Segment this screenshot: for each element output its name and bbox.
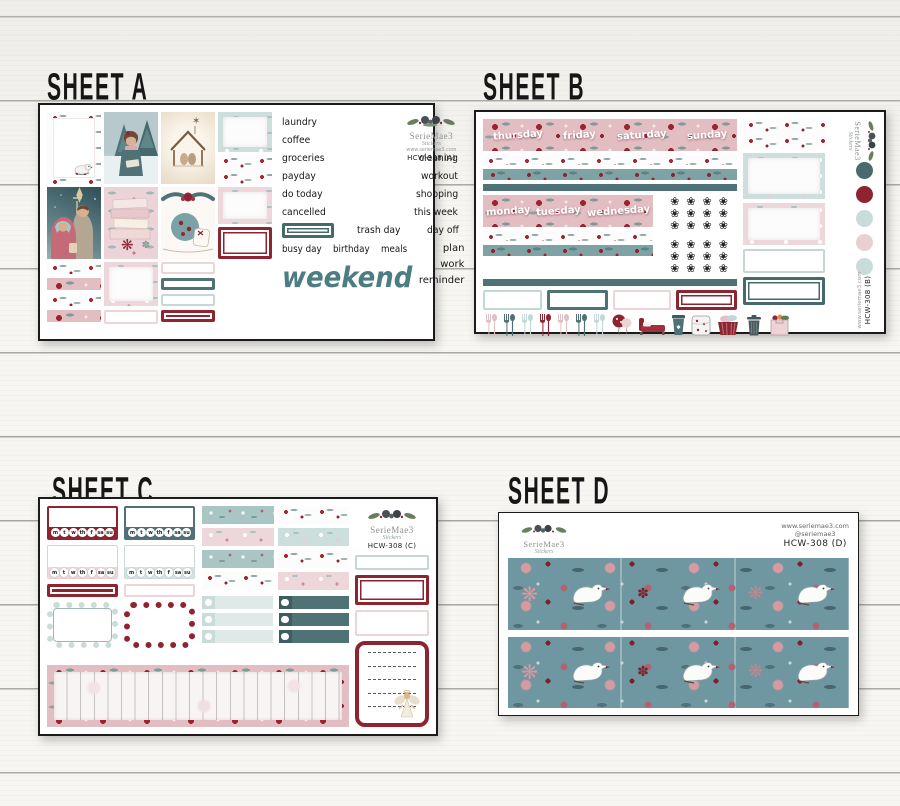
blue-floral-box-blank	[748, 158, 820, 194]
day-letter: w	[69, 528, 78, 537]
day-letter: m	[127, 568, 136, 577]
word-row: cancelled this week	[282, 203, 464, 221]
washi-strip	[483, 231, 653, 241]
flower-icon: ✽	[637, 587, 649, 601]
sheet-d-meta: www.seriemae3.com @seriemae3 HCW-308 (D)	[781, 520, 849, 549]
utensils-icon-light-blue	[521, 314, 534, 336]
grocery-bag-icon	[768, 313, 791, 336]
pattern-sticker	[278, 572, 350, 590]
scallop-box-red	[124, 602, 195, 648]
word-label: cleaning	[419, 153, 458, 164]
pattern-sticker	[202, 506, 274, 524]
pink-label-sticker	[124, 584, 195, 597]
half-box-column	[218, 112, 272, 184]
day-letter: f	[87, 528, 96, 537]
brand-logo-block: SerieMae3 Stickers	[847, 104, 881, 178]
word-row: laundry	[282, 113, 355, 131]
day-label: friday	[563, 128, 597, 141]
checklist-strip-teal	[279, 630, 350, 643]
pink-label-sticker	[355, 610, 429, 636]
brand-tagline: Stickers	[508, 549, 580, 555]
washi-column: thursday friday saturday sunday monday	[483, 119, 737, 310]
day-letter: su	[183, 568, 192, 577]
day-letter: sa	[96, 528, 105, 537]
dove-washi-strip: ❋ ✽ ❋	[508, 637, 849, 709]
sticker-sheet-b: thursday friday saturday sunday monday	[474, 110, 886, 334]
day-label: monday	[486, 204, 531, 218]
label-sticker-row	[483, 290, 737, 310]
day-letter: m	[51, 528, 60, 537]
blue-floral-box-blank	[223, 117, 267, 147]
star-icon: ✶	[192, 117, 200, 127]
checkbox-circle	[281, 599, 289, 607]
day-letter: sa	[97, 568, 106, 577]
dashed-line	[368, 666, 416, 667]
date-box-blank	[126, 508, 193, 527]
solid-teal-strip	[483, 184, 737, 191]
flower-checkbox-icon: ❀	[686, 220, 695, 232]
checkbox-circle	[281, 616, 289, 624]
pink-floral-box	[743, 203, 825, 245]
week-letter-strip: mtwthfsasu	[125, 567, 194, 578]
brand-tagline: Stickers	[398, 141, 464, 147]
utensils-icon-red	[539, 314, 552, 336]
pink-floral-box	[218, 187, 272, 224]
wreath-icon	[405, 114, 457, 127]
word-label: busy day	[282, 244, 322, 255]
sheet-a-content: ✶	[40, 105, 433, 339]
flower-checkbox-icon: ❀	[686, 263, 695, 275]
poinsettia-icon: ❋	[748, 663, 763, 681]
pink-floral-box-blank	[223, 192, 267, 219]
washi-strip	[483, 169, 737, 180]
day-letter: su	[106, 568, 115, 577]
wreath-icon	[520, 523, 568, 535]
day-letter: w	[146, 528, 155, 537]
checklist-grid	[202, 596, 349, 643]
laundry-basket-icon	[716, 313, 740, 336]
day-letter: m	[128, 528, 137, 537]
empty-cell	[218, 262, 272, 328]
right-box-column	[743, 119, 825, 310]
day-letter: th	[155, 528, 164, 537]
word-label: laundry	[282, 117, 317, 128]
teal-label-sticker	[161, 278, 215, 290]
date-box-blue: mtwthfsasu	[124, 545, 195, 579]
brand-handle: @seriemae3	[781, 530, 849, 538]
flower-checkbox-icon: ❀	[670, 263, 679, 275]
brand-tagline: Stickers	[355, 535, 429, 541]
date-box-column: mtwthfsasu mtwthfsasu	[47, 506, 195, 660]
word-label: birthday	[333, 244, 370, 255]
washi-strip	[483, 245, 653, 256]
brand-website: www.seriemae3.com	[857, 257, 863, 343]
pattern-sticker-grid	[202, 506, 349, 590]
brand-logo-block: SerieMae3 Stickers	[508, 520, 580, 555]
week-letter-strip: mtwthfsasu	[126, 527, 193, 538]
dove-icon	[675, 579, 721, 609]
day-letter: m	[50, 568, 59, 577]
label-row	[47, 584, 195, 597]
pattern-sticker	[202, 572, 274, 590]
day-letter: f	[165, 568, 174, 577]
red-label-sticker	[676, 290, 737, 310]
pink-floral-box-blank	[748, 208, 820, 240]
blue-label-sticker	[355, 555, 429, 570]
day-label: tuesday	[536, 204, 581, 218]
week-letter-strip: mtwthfsasu	[48, 567, 117, 578]
brand-name: SerieMae3	[853, 104, 862, 178]
angel-icon	[394, 687, 420, 719]
word-row: coffee	[282, 131, 355, 149]
day-letter: t	[137, 528, 146, 537]
washi-strip-stack	[47, 262, 101, 328]
flower-checkbox-icon: ❀	[670, 220, 679, 232]
checkbox-square	[202, 613, 215, 626]
word-row: payday workout	[282, 167, 464, 185]
pattern-column	[202, 506, 349, 660]
sheet-c-left: mtwthfsasu mtwthfsasu	[47, 506, 349, 727]
checklist-strip-blue	[202, 613, 273, 626]
flower-checkbox-icon: ❀	[719, 220, 728, 232]
word-label: work	[440, 259, 464, 270]
date-box-row: mtwthfsasu mtwthfsasu	[47, 545, 195, 579]
word-label: meals	[381, 244, 407, 255]
day-letter: th	[155, 568, 164, 577]
swatch-dark-red	[856, 186, 873, 203]
dove-icon	[565, 579, 611, 609]
swatch-blush-pink	[856, 234, 873, 251]
washi-strip	[47, 278, 101, 290]
tracker-columns	[54, 672, 342, 720]
day-label: thursday	[493, 128, 544, 142]
checkbox-square	[279, 596, 292, 609]
date-box-teal: mtwthfsasu	[124, 506, 195, 540]
flower-checkbox-icon: ❀	[703, 263, 712, 275]
swatch-light-blue	[856, 210, 873, 227]
pink-label-sticker	[613, 290, 672, 310]
day-letter: su	[182, 528, 191, 537]
pattern-sticker	[278, 550, 350, 568]
brand-website: www.seriemae3.com	[781, 522, 849, 530]
pink-label-sticker	[104, 310, 158, 324]
sheet-b-side-rail: SerieMae3 Stickers www.seriemae3.com HCW…	[851, 119, 877, 325]
word-label-panel: SerieMae3 Stickers www.seriemae3.com HCW…	[282, 112, 464, 332]
day-letter: t	[137, 568, 146, 577]
day-letter: w	[146, 568, 155, 577]
stable-art	[161, 112, 215, 184]
blue-label-sticker	[483, 290, 542, 310]
day-letter: t	[60, 528, 69, 537]
book-stack-sticker: ❋ ✽	[104, 187, 158, 259]
teal-label-sticker	[743, 277, 825, 305]
sticker-sheet-a: ✶	[38, 103, 435, 341]
dove-icon	[790, 579, 836, 609]
word-label: do today	[282, 189, 323, 200]
checkbox-circle	[205, 616, 213, 624]
date-box-row: mtwthfsasu mtwthfsasu	[47, 506, 195, 540]
poinsettia-icon: ❋	[521, 584, 538, 604]
sheet-d-title: SHEET D	[508, 470, 610, 513]
poinsettia-icon: ❋	[121, 238, 134, 253]
day-letter: su	[105, 528, 114, 537]
word-bottom-right: plan work reminder	[412, 240, 464, 332]
teal-label-sticker	[547, 290, 608, 310]
utensils-icon-teal	[575, 314, 588, 336]
washi-column-narrow: monday tuesday wednesday	[483, 195, 653, 275]
blue-label-sticker	[743, 249, 825, 273]
word-row: trash day day off	[282, 221, 464, 239]
pink-label-sticker	[161, 262, 215, 274]
flower-checkbox-grid: ❀❀❀❀ ❀❀❀❀ ❀❀❀❀	[670, 196, 728, 232]
rail-logo: SerieMae3 Stickers	[827, 120, 900, 162]
checkbox-circle	[281, 633, 289, 641]
brand-name: SerieMae3	[355, 525, 429, 535]
rail-code-text: www.seriemae3.com HCW-308 (B)	[856, 257, 872, 343]
day-label: wednesday	[587, 203, 651, 218]
washi-strip	[47, 262, 101, 274]
word-bottom-block: busy day birthday meals weekend plan wor…	[282, 240, 464, 332]
date-box-pink: mtwthfsasu	[47, 545, 118, 579]
dove-icon	[675, 657, 721, 687]
day-washi-strip: monday tuesday wednesday	[483, 195, 653, 227]
blue-floral-box	[743, 153, 825, 199]
day-label: sunday	[686, 128, 727, 142]
brand-name: SerieMae3	[398, 131, 464, 141]
sheet-b-content: thursday friday saturday sunday monday	[476, 112, 884, 332]
day-letter: sa	[173, 528, 182, 537]
bird-icon	[73, 162, 93, 175]
quarter-label-stack	[161, 262, 215, 328]
sheet-d-content: SerieMae3 Stickers www.seriemae3.com @se…	[499, 513, 858, 715]
utensils-icon-teal	[503, 314, 516, 336]
bird-frame-sticker	[47, 112, 101, 184]
coffee-cup-icon	[671, 314, 686, 336]
teal-label-sticker	[282, 223, 334, 238]
dashed-line	[368, 652, 416, 653]
blue-floral-box	[218, 112, 272, 152]
half-box-column-2	[218, 187, 272, 259]
wreath-icon	[366, 508, 418, 521]
checklist-strip-teal	[279, 596, 350, 609]
day-letter: t	[60, 568, 69, 577]
floral-box-stack	[104, 262, 158, 328]
pink-floral-frame-blank	[109, 267, 153, 301]
day-letter: th	[78, 528, 87, 537]
sheet-c-code: HCW-308 (C)	[355, 542, 429, 550]
checklist-strip-blue	[202, 596, 273, 609]
pattern-sticker	[278, 528, 350, 546]
word-row: busy day birthday meals	[282, 240, 412, 258]
balloon-icon	[611, 313, 633, 336]
day-letter: f	[88, 568, 97, 577]
word-bottom-left: busy day birthday meals weekend	[282, 240, 412, 332]
date-box-blank	[48, 546, 117, 567]
flower-checkbox-icon: ❀	[719, 263, 728, 275]
word-label: payday	[282, 171, 316, 182]
dove-icon	[790, 657, 836, 687]
tracker-washi-strip	[47, 665, 349, 727]
word-label: reminder	[419, 275, 465, 286]
day-label: saturday	[616, 128, 666, 142]
sheet-b-top: thursday friday saturday sunday monday	[483, 119, 846, 310]
poinsettia-icon: ❋	[521, 662, 538, 682]
poinsettia-icon: ❋	[748, 585, 763, 603]
checkbox-square	[279, 613, 292, 626]
pink-floral-frame-box	[104, 262, 158, 306]
date-box-red: mtwthfsasu	[47, 506, 118, 540]
red-label-sticker	[218, 227, 272, 260]
sparkle-leaf-icon: ✽	[142, 241, 150, 251]
holy-family-art	[47, 187, 101, 259]
word-label: groceries	[282, 153, 325, 164]
scallop-row	[47, 602, 195, 648]
brand-logo-block: SerieMae3 Stickers HCW-308 (C)	[355, 506, 429, 550]
sheet-b-title: SHEET B	[483, 66, 585, 109]
checklist-strip-teal	[279, 613, 350, 626]
icon-sticker-row	[483, 310, 846, 336]
gift-art	[161, 187, 215, 259]
word-label: workout	[421, 171, 458, 182]
word-label: this week	[414, 207, 458, 218]
flower-checkbox-icon: ❀	[703, 220, 712, 232]
mid-row: monday tuesday wednesday ❀❀❀❀	[483, 195, 737, 275]
rail-code: www.seriemae3.com HCW-308 (B)	[821, 275, 900, 324]
date-box-blank	[49, 508, 116, 527]
red-label-sticker	[355, 575, 429, 605]
flower-icon: ✽	[637, 665, 649, 679]
blanket-icon	[691, 315, 711, 336]
checkbox-square	[202, 596, 215, 609]
washi-strip	[47, 294, 101, 306]
trash-can-icon	[745, 314, 763, 336]
angel-note-box	[355, 641, 429, 727]
utensils-icon-pink	[485, 314, 498, 336]
checkbox-circle	[205, 599, 213, 607]
day-washi-strip: thursday friday saturday sunday	[483, 119, 737, 151]
week-letter-strip: mtwthfsasu	[49, 527, 116, 538]
sheet-c-content: mtwthfsasu mtwthfsasu	[40, 499, 436, 734]
sheet-d-code: HCW-308 (D)	[781, 539, 849, 549]
pattern-sticker	[202, 550, 274, 568]
word-label: cancelled	[282, 207, 326, 218]
word-label: shopping	[416, 189, 458, 200]
checklist-strip-blue	[202, 630, 273, 643]
washi-strip	[47, 310, 101, 322]
dashed-line	[368, 679, 416, 680]
sheet-d-header: SerieMae3 Stickers www.seriemae3.com @se…	[508, 520, 849, 558]
sheet-c-right: SerieMae3 Stickers HCW-308 (C)	[355, 506, 429, 727]
wreath-icon	[866, 119, 877, 163]
word-label: coffee	[282, 135, 310, 146]
winter-girl-sticker	[104, 112, 158, 184]
checkbox-circle	[205, 633, 213, 641]
white-floral-box	[743, 119, 825, 149]
word-row: groceries cleaning	[282, 149, 464, 167]
nativity-stable-sticker: ✶	[161, 112, 215, 184]
day-letter: w	[69, 568, 78, 577]
date-box-blank	[125, 546, 194, 567]
word-label: trash day	[357, 225, 400, 236]
utensils-icon-pink	[557, 314, 570, 336]
checkbox-square	[279, 630, 292, 643]
scallop-box-blue	[47, 602, 118, 648]
pattern-sticker	[202, 528, 274, 546]
sheet-b-main-area: thursday friday saturday sunday monday	[483, 119, 846, 325]
utensils-icon-light-blue	[593, 314, 606, 336]
brand-name: SerieMae3	[508, 539, 580, 549]
dove-icon	[565, 657, 611, 687]
product-photo: SHEET A SHEET B SHEET C SHEET D	[0, 0, 900, 806]
red-label-sticker	[161, 310, 215, 322]
word-label: plan	[443, 243, 465, 254]
word-label: day off	[427, 225, 459, 236]
flower-checkbox-zone: ❀❀❀❀ ❀❀❀❀ ❀❀❀❀ ❀❀❀❀ ❀❀❀❀ ❀❀❀❀	[661, 195, 737, 275]
blue-label-sticker	[161, 294, 215, 306]
day-letter: f	[164, 528, 173, 537]
bed-icon	[638, 316, 666, 336]
weekend-script: weekend	[282, 262, 412, 294]
brand-tagline: Stickers	[847, 104, 853, 178]
sheet-a-sticker-grid: ✶	[47, 112, 275, 332]
solid-teal-strip	[483, 279, 737, 286]
day-letter: th	[78, 568, 87, 577]
sheet-b-code: HCW-308 (B)	[864, 257, 872, 343]
washi-strip	[483, 155, 737, 165]
sticker-sheet-c: mtwthfsasu mtwthfsasu	[38, 497, 438, 736]
sheet-c-top: mtwthfsasu mtwthfsasu	[47, 506, 349, 660]
white-floral-box	[218, 155, 272, 185]
sticker-sheet-d: SerieMae3 Stickers www.seriemae3.com @se…	[498, 512, 859, 716]
red-label-sticker	[47, 584, 118, 597]
checkbox-square	[202, 630, 215, 643]
dove-washi-strip: ❋ ✽ ❋	[508, 558, 849, 630]
word-row: do today shopping	[282, 185, 464, 203]
gift-sticker	[161, 187, 215, 259]
holy-family-sticker	[47, 187, 101, 259]
pattern-sticker	[278, 506, 350, 524]
day-letter: sa	[174, 568, 183, 577]
winter-girl-art	[104, 112, 158, 184]
washi-strip-stack: ❋ ✽ ❋ ❋ ✽ ❋	[508, 558, 849, 708]
flower-checkbox-grid: ❀❀❀❀ ❀❀❀❀ ❀❀❀❀	[670, 239, 728, 275]
